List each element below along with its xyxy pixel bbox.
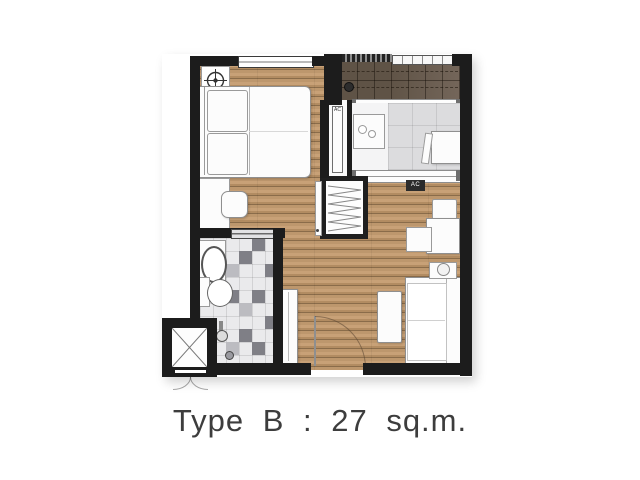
tile-accent xyxy=(252,290,265,303)
entry-door-swing xyxy=(190,377,208,390)
burner-icon xyxy=(358,125,367,134)
pillow xyxy=(207,90,248,132)
wardrobe-door xyxy=(315,181,322,236)
wall xyxy=(190,56,200,323)
bedroom-window xyxy=(238,56,314,68)
duvet-crease xyxy=(249,131,308,132)
shaft-x-icon xyxy=(172,328,207,367)
hanging-clothes-icon xyxy=(326,181,363,234)
sofa-cushion-line xyxy=(408,320,445,321)
ac-unit: AC xyxy=(332,106,343,173)
tile-accent xyxy=(239,303,252,316)
balcony-railing xyxy=(342,54,392,62)
vanity-stool xyxy=(221,191,248,218)
tile-accent xyxy=(226,264,239,277)
tile-accent xyxy=(265,264,273,277)
shower-drain-icon xyxy=(225,351,234,360)
balcony-railing xyxy=(392,55,457,65)
folding-table xyxy=(431,131,462,164)
tile-accent xyxy=(252,238,265,251)
shower-head-icon xyxy=(216,330,228,342)
entry-door-swing xyxy=(173,377,191,390)
burner-icon xyxy=(368,130,376,138)
cabinet-line xyxy=(288,292,289,361)
headboard-line xyxy=(204,87,205,175)
shaft-door-gap xyxy=(175,370,206,373)
wall-ac-unit: AC xyxy=(406,180,425,191)
wall xyxy=(215,363,311,375)
pillow xyxy=(207,133,248,175)
wall xyxy=(460,54,472,376)
plan-caption: Type B : 27 sq.m. xyxy=(0,403,640,439)
shaft-room xyxy=(172,328,207,367)
wall xyxy=(207,318,217,373)
tile-accent xyxy=(239,251,252,264)
floor-plan-image: AC AC xyxy=(0,0,640,480)
balcony-floor xyxy=(340,60,460,102)
ac-label: AC xyxy=(334,107,341,113)
wall xyxy=(324,54,342,105)
coffee-table xyxy=(377,291,402,343)
balcony-dashed-line xyxy=(342,87,458,88)
tile-accent xyxy=(239,329,252,342)
wall xyxy=(320,100,329,178)
wall xyxy=(273,228,283,368)
ac-label: AC xyxy=(411,182,420,188)
wall xyxy=(363,363,463,375)
sofa-seat xyxy=(407,283,447,361)
wardrobe-knob xyxy=(316,229,319,232)
tile-accent xyxy=(265,316,273,329)
tile-accent xyxy=(252,342,265,355)
plant-icon xyxy=(437,263,450,276)
shoe-cabinet xyxy=(281,289,298,366)
wardrobe-interior xyxy=(326,181,363,234)
floor-drain-icon xyxy=(344,82,354,92)
toilet-bowl xyxy=(207,279,233,307)
side-table xyxy=(406,227,432,252)
wall xyxy=(347,100,352,178)
balcony-dashed-line xyxy=(342,71,458,72)
